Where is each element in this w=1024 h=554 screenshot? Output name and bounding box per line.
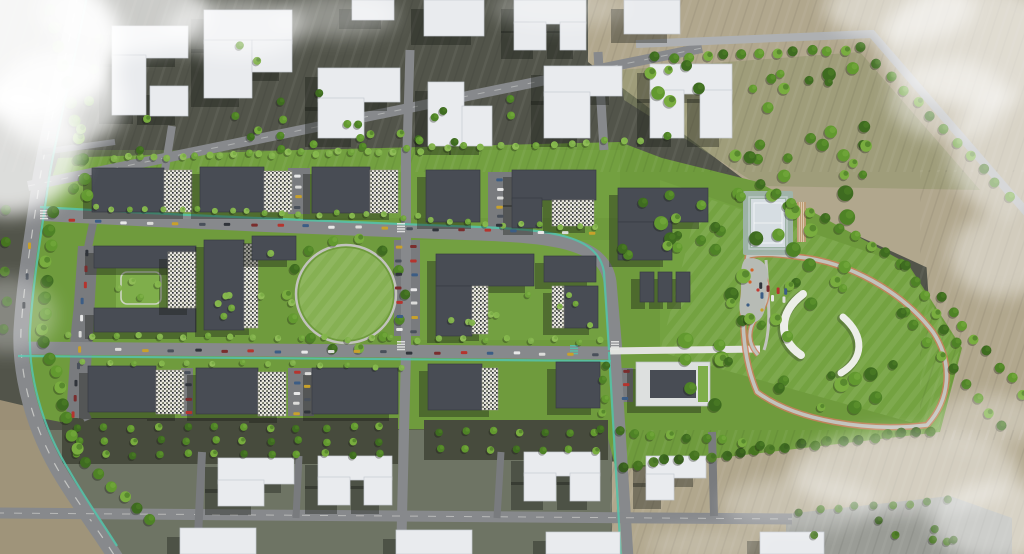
oval-park-stripes — [299, 248, 393, 340]
tree-highlight — [485, 338, 488, 341]
kindergarten-green-roof — [698, 366, 708, 402]
tree-highlight — [280, 98, 284, 102]
tree-highlight — [688, 54, 693, 59]
tree-highlight — [390, 335, 393, 338]
tree-highlight — [844, 187, 852, 195]
tree-highlight — [854, 373, 861, 380]
tree-highlight — [728, 358, 732, 362]
tree-highlight — [153, 154, 157, 158]
tree-highlight — [820, 404, 824, 408]
tree-highlight — [870, 369, 877, 376]
tree-highlight — [249, 150, 253, 154]
car — [497, 188, 504, 191]
tree-highlight — [594, 225, 597, 228]
tree-highlight — [139, 147, 143, 151]
tree-highlight — [838, 224, 843, 229]
tree-highlight — [657, 87, 664, 94]
car — [623, 383, 630, 386]
tree-highlight — [580, 224, 583, 227]
tree-highlight — [124, 492, 130, 498]
crosswalk-bar — [397, 228, 405, 230]
tree-highlight — [600, 426, 604, 430]
tree-highlight — [809, 225, 816, 232]
car — [147, 222, 154, 225]
tree-highlight — [846, 211, 854, 219]
play-equipment — [750, 268, 753, 271]
tree-highlight — [824, 214, 829, 219]
tree-highlight — [760, 180, 765, 185]
building-mass — [396, 530, 472, 554]
building-roof — [436, 286, 472, 336]
car — [172, 222, 179, 225]
building-mass — [570, 473, 600, 501]
crosswalk-bar — [611, 344, 619, 346]
massing-s-6 — [383, 530, 472, 554]
tree-highlight — [884, 248, 889, 253]
tree-highlight — [182, 154, 186, 158]
building-mass — [424, 0, 484, 36]
tree-highlight — [855, 232, 860, 237]
car — [396, 273, 403, 276]
tree-highlight — [813, 532, 817, 536]
stub-712 — [712, 432, 714, 516]
tree-highlight — [296, 451, 300, 455]
crosswalk-bar — [611, 346, 619, 348]
tree-highlight — [366, 212, 369, 215]
tree-highlight — [780, 71, 784, 75]
tree-highlight — [133, 439, 137, 443]
tree-highlight — [286, 291, 291, 296]
tree-highlight — [941, 293, 946, 298]
cloud — [720, 476, 880, 532]
car — [95, 220, 102, 223]
tree-highlight — [742, 270, 749, 277]
car — [304, 385, 311, 388]
car — [74, 380, 77, 387]
car — [406, 227, 413, 230]
tree-highlight — [843, 171, 848, 176]
tree-highlight — [554, 336, 557, 339]
tree-highlight — [660, 218, 667, 225]
tree-highlight — [360, 135, 364, 139]
building-mass — [150, 86, 188, 116]
building-mass — [462, 106, 492, 146]
tree-highlight — [194, 153, 198, 157]
tree-highlight — [714, 245, 720, 251]
tree-highlight — [770, 75, 775, 80]
tree-highlight — [812, 46, 817, 51]
crosswalk-bar — [397, 344, 405, 346]
tree-highlight — [466, 428, 470, 432]
car — [411, 273, 418, 276]
tree-highlight — [826, 47, 831, 52]
car — [380, 350, 387, 353]
tree-highlight — [357, 121, 361, 125]
tree-highlight — [332, 345, 337, 350]
tree-highlight — [82, 359, 85, 362]
tree-highlight — [669, 431, 674, 436]
cloud — [890, 60, 1010, 140]
car — [28, 243, 31, 250]
tree-highlight — [892, 361, 897, 366]
tree-highlight — [493, 428, 497, 432]
building-roof — [426, 170, 480, 222]
tree-highlight — [103, 424, 107, 428]
tree-highlight — [568, 446, 572, 450]
tree-highlight — [722, 50, 727, 55]
tree-highlight — [264, 211, 267, 214]
tree-highlight — [325, 450, 329, 454]
tree-highlight — [783, 171, 789, 177]
car — [397, 315, 404, 318]
tree-highlight — [241, 438, 245, 442]
tree-highlight — [852, 63, 858, 69]
tree-highlight — [138, 333, 141, 336]
tree-highlight — [752, 85, 756, 89]
car — [496, 178, 503, 181]
tree-highlight — [235, 113, 239, 117]
tree-highlight — [267, 362, 270, 365]
tree-highlight — [398, 266, 403, 271]
tree-highlight — [569, 430, 573, 434]
tree-highlight — [784, 444, 789, 449]
tree-highlight — [186, 361, 189, 364]
tree-highlight — [845, 47, 850, 52]
tree-highlight — [133, 361, 136, 364]
tree-highlight — [734, 151, 740, 157]
tree-highlight — [233, 152, 237, 156]
tree-highlight — [417, 338, 420, 341]
tree-highlight — [572, 141, 576, 145]
building-facade — [264, 171, 292, 212]
crosswalk-bar — [397, 346, 405, 348]
tree-highlight — [828, 79, 832, 83]
tree-highlight — [462, 336, 465, 339]
car — [224, 223, 231, 226]
tree-highlight — [749, 152, 755, 158]
tree-highlight — [225, 293, 229, 297]
car — [328, 350, 335, 353]
tree-highlight — [595, 448, 599, 452]
tree-highlight — [778, 384, 783, 389]
tree-highlight — [663, 455, 668, 460]
tree-highlight — [197, 206, 200, 209]
tree-highlight — [352, 452, 356, 456]
building-roof — [196, 368, 258, 414]
tree-highlight — [586, 140, 590, 144]
tree-highlight — [718, 341, 724, 347]
building-roof — [676, 272, 690, 302]
car — [434, 352, 441, 355]
car — [432, 228, 439, 231]
car — [120, 221, 127, 224]
car — [78, 346, 81, 353]
tree-highlight — [73, 184, 78, 189]
tree-highlight — [315, 152, 319, 156]
tree-highlight — [185, 438, 189, 442]
apartment-l2 — [187, 368, 286, 423]
tree-highlight — [769, 445, 774, 450]
tree-highlight — [157, 282, 161, 286]
tree-highlight — [666, 242, 671, 247]
tree-highlight — [351, 213, 354, 216]
building-roof — [658, 272, 672, 302]
massing-s-2 — [305, 456, 392, 514]
crosswalk-bar — [397, 223, 405, 225]
car — [79, 331, 82, 338]
tree-highlight — [324, 334, 327, 337]
tree-highlight — [521, 221, 524, 224]
tree-highlight — [730, 289, 737, 296]
tree-highlight — [740, 50, 745, 55]
tree-highlight — [383, 212, 386, 215]
tree-highlight — [130, 426, 134, 430]
tree-highlight — [776, 189, 781, 194]
tree-highlight — [749, 314, 755, 320]
tree-highlight — [50, 241, 56, 247]
car — [142, 349, 149, 352]
tree-highlight — [403, 216, 406, 219]
car — [293, 412, 300, 415]
tree-highlight — [320, 363, 323, 366]
tree-highlight — [271, 438, 275, 442]
tree-highlight — [575, 301, 578, 304]
building-mass — [544, 66, 622, 96]
tree-highlight — [649, 68, 655, 74]
tree-highlight — [940, 352, 945, 357]
crosswalk-bar — [40, 218, 48, 220]
tree-highlight — [59, 383, 65, 389]
tree-highlight — [308, 247, 313, 252]
building-mass — [700, 90, 732, 138]
tree-highlight — [163, 207, 166, 210]
tree-highlight — [865, 141, 871, 147]
car — [72, 411, 75, 418]
tree-highlight — [694, 451, 699, 456]
car — [496, 206, 503, 209]
tree-highlight — [559, 304, 562, 307]
tree-highlight — [809, 209, 814, 214]
tree-highlight — [271, 451, 275, 455]
car — [411, 288, 418, 291]
tree-highlight — [96, 204, 99, 207]
tree-highlight — [700, 236, 705, 241]
lower-ring-street — [16, 348, 614, 353]
tree-highlight — [726, 452, 731, 457]
tree-highlight — [49, 354, 55, 360]
tree-highlight — [298, 212, 301, 215]
tree-highlight — [158, 424, 162, 428]
tree-highlight — [116, 333, 119, 336]
tree-highlight — [840, 379, 847, 386]
tree-highlight — [684, 334, 692, 342]
car — [247, 349, 254, 352]
tree-highlight — [490, 447, 494, 451]
building-roof — [512, 170, 596, 200]
tree-highlight — [490, 312, 493, 315]
tree-highlight — [118, 285, 122, 289]
tree-highlight — [382, 247, 387, 252]
car — [294, 392, 301, 395]
car — [184, 371, 191, 374]
courtyard-east-wing — [159, 252, 196, 315]
tree-highlight — [68, 332, 71, 335]
car — [458, 228, 465, 231]
tree-highlight — [280, 146, 284, 150]
building-facade — [472, 286, 488, 334]
tree-highlight — [375, 365, 378, 368]
tree-highlight — [510, 112, 514, 116]
tree-highlight — [434, 114, 438, 118]
car — [84, 282, 87, 289]
tree-highlight — [653, 458, 658, 463]
tree-highlight — [131, 278, 135, 282]
tree-highlight — [105, 451, 109, 455]
car — [485, 229, 492, 232]
building-roof — [252, 236, 296, 260]
tree-highlight — [943, 325, 948, 330]
tree-highlight — [451, 318, 454, 321]
tree-highlight — [378, 423, 382, 427]
car — [777, 287, 780, 294]
car — [461, 351, 468, 354]
car — [487, 352, 494, 355]
tree-highlight — [463, 143, 467, 147]
tree-highlight — [270, 425, 274, 429]
tree-highlight — [875, 393, 881, 399]
tree-highlight — [730, 299, 735, 304]
tree-highlight — [86, 191, 92, 197]
tree-highlight — [506, 336, 509, 339]
central-vertical-405 — [401, 148, 406, 554]
tree-highlight — [337, 148, 341, 152]
tree-highlight — [318, 90, 322, 94]
car — [410, 260, 417, 263]
tree-highlight — [209, 152, 213, 156]
building-mass — [218, 480, 264, 506]
tree-highlight — [831, 372, 835, 376]
kindergarten-building — [627, 362, 710, 413]
tree-highlight — [166, 155, 170, 159]
tree-highlight — [640, 138, 644, 142]
building-roof — [312, 167, 370, 213]
tree-highlight — [4, 268, 9, 273]
car — [278, 224, 285, 227]
tree-highlight — [271, 153, 275, 157]
tree-highlight — [319, 213, 322, 216]
tree-highlight — [277, 336, 280, 339]
tree-highlight — [379, 450, 383, 454]
tree-highlight — [956, 338, 961, 343]
tree-highlight — [129, 207, 132, 210]
car — [85, 250, 88, 257]
tree-highlight — [326, 425, 330, 429]
apartment-a1 — [83, 168, 192, 219]
massing-s-5 — [167, 528, 256, 554]
tree-highlight — [775, 315, 781, 321]
apartment-l1 — [79, 366, 184, 421]
car — [562, 231, 569, 234]
car — [195, 349, 202, 352]
crosswalk-bar — [397, 226, 405, 228]
tree-highlight — [821, 140, 827, 146]
tree-highlight — [843, 262, 849, 268]
tree-highlight — [912, 321, 917, 326]
car — [771, 295, 774, 302]
tree-highlight — [472, 320, 475, 323]
tree-highlight — [280, 133, 284, 137]
play-equipment — [756, 288, 759, 291]
tree-highlight — [401, 366, 404, 369]
tree-highlight — [354, 423, 358, 427]
tree-highlight — [84, 458, 90, 464]
tree-highlight — [480, 144, 484, 148]
building-mass — [318, 68, 400, 102]
tree-highlight — [973, 336, 978, 341]
tree-highlight — [294, 265, 299, 270]
tree-highlight — [642, 199, 647, 204]
tree-highlight — [214, 424, 218, 428]
crosswalk-bar — [611, 349, 619, 351]
tree-highlight — [46, 276, 52, 282]
tree-highlight — [149, 515, 155, 521]
tree-highlight — [860, 43, 865, 48]
tree-highlight — [677, 232, 681, 236]
tree-highlight — [291, 300, 295, 304]
tree-highlight — [79, 438, 83, 442]
car — [301, 351, 308, 354]
tree-highlight — [871, 242, 876, 247]
tree-highlight — [243, 424, 247, 428]
tree-highlight — [223, 313, 227, 317]
building-roof — [200, 167, 264, 212]
car — [186, 411, 193, 414]
scene-svg — [0, 0, 1024, 554]
building-facade — [552, 200, 594, 226]
car — [410, 245, 417, 248]
tree-highlight — [686, 435, 691, 440]
tree-highlight — [673, 54, 678, 59]
tree-highlight — [161, 361, 164, 364]
car — [328, 226, 335, 229]
tree-highlight — [48, 225, 54, 231]
tree-highlight — [654, 52, 659, 57]
crosswalk-bar — [570, 348, 578, 350]
tree-highlight — [560, 225, 563, 228]
tree-highlight — [600, 337, 603, 340]
tree-highlight — [999, 364, 1004, 369]
crosswalk-bar — [397, 341, 405, 343]
tree-highlight — [301, 336, 304, 339]
tree-highlight — [464, 446, 468, 450]
car — [622, 397, 629, 400]
north-vertical-408 — [407, 50, 410, 150]
car — [592, 353, 599, 356]
tree-highlight — [901, 309, 906, 314]
apartment-a2 — [191, 167, 292, 219]
tree-highlight — [668, 66, 672, 70]
tree-highlight — [358, 344, 363, 349]
tree-highlight — [114, 156, 118, 160]
car — [294, 371, 301, 374]
tree-highlight — [669, 233, 675, 239]
tree-highlight — [783, 84, 789, 90]
tree-highlight — [378, 150, 382, 154]
tree-highlight — [77, 425, 81, 429]
tree-highlight — [740, 449, 745, 454]
car — [538, 231, 545, 234]
tree-highlight — [706, 435, 711, 440]
